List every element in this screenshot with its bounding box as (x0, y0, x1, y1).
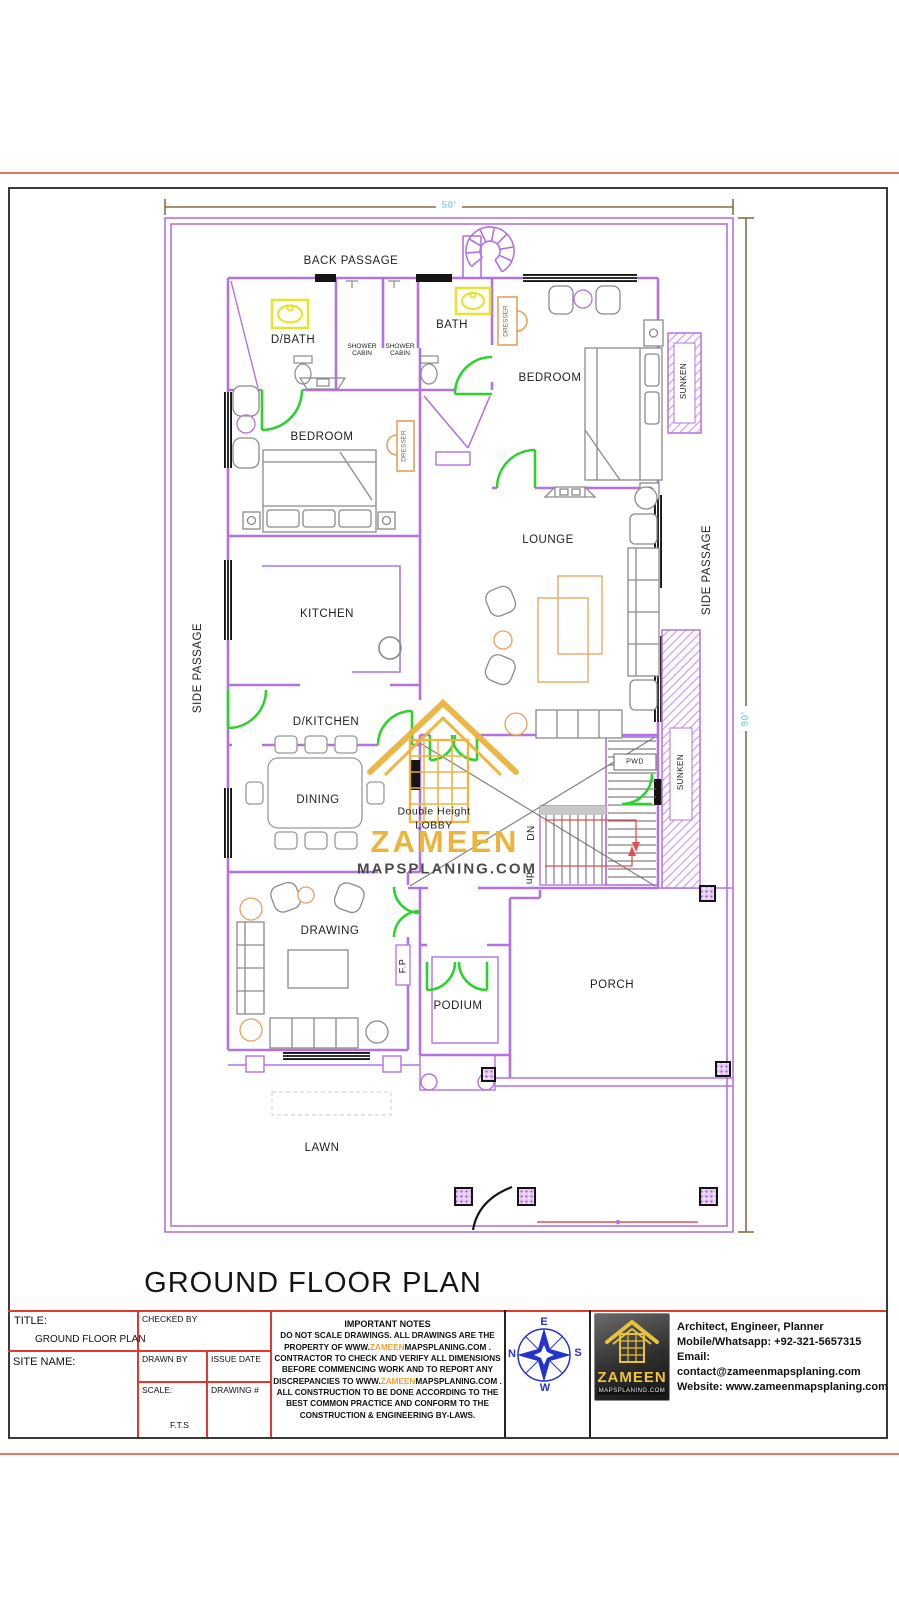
titleblock-divider (8, 1350, 272, 1352)
notes-line: DISCREPANCIES TO WWW.ZAMEENMAPSPLANING.C… (272, 1376, 503, 1387)
room-label-lawn: LAWN (305, 1142, 340, 1154)
notes-line: CONSTRUCTION & ENGINEERING BY-LAWS. (272, 1410, 503, 1421)
pillars (455, 886, 730, 1205)
logo-house-icon (602, 1317, 662, 1363)
compass-south: S (574, 1347, 581, 1359)
drawing-room-furniture (237, 880, 410, 1048)
company-logo: ZAMEEN MAPSPLANING.COM (594, 1313, 670, 1401)
compass-north: N (508, 1348, 516, 1360)
room-label-shower-cabin-2: SHOWERCABIN (385, 344, 414, 358)
compass-west: W (540, 1382, 550, 1394)
contact-info: Architect, Engineer, Planner Mobile/What… (677, 1320, 889, 1395)
contact-line: Architect, Engineer, Planner (677, 1320, 889, 1335)
room-label-drawing: DRAWING (301, 925, 360, 937)
dining-furniture (246, 736, 384, 849)
contact-line: Email: contact@zameenmapsplaning.com (677, 1350, 889, 1380)
room-label-pwd: PWD (626, 758, 644, 765)
site-name-label: SITE NAME: (13, 1356, 75, 1368)
room-label-d-kitchen: D/KITCHEN (293, 716, 359, 728)
label-fireplace: F.P (398, 959, 407, 974)
compass-icon (506, 1312, 588, 1434)
label-side-passage-right: SIDE PASSAGE (701, 525, 713, 615)
compass-east: E (540, 1316, 547, 1328)
drawn-by-label: DRAWN BY (142, 1354, 188, 1364)
width-dimension-label: 50' (438, 201, 459, 212)
notes-line: DO NOT SCALE DRAWINGS. ALL DRAWINGS ARE … (272, 1330, 503, 1341)
contact-line: Website: www.zameenmapsplaning.com (677, 1380, 889, 1395)
drawing-number-label: DRAWING # (211, 1385, 259, 1395)
room-label-lobby-line1: Double Height (397, 806, 470, 817)
sheet-title: GROUND FLOOR PLAN (144, 1268, 482, 1298)
notes-line: ALL CONSTRUCTION TO BE DONE ACCORDING TO… (272, 1387, 503, 1398)
notes-line: BEFORE COMMENCING WORK AND TO REPORT ANY (272, 1364, 503, 1375)
titleblock-divider (137, 1310, 139, 1437)
notes-title: IMPORTANT NOTES (272, 1318, 503, 1330)
label-dresser-right: DRESSER (504, 305, 511, 336)
notes-line: CONTRACTOR TO CHECK AND VERIFY ALL DIMEN… (272, 1353, 503, 1364)
room-label-bedroom-left: BEDROOM (291, 431, 354, 443)
titleblock-divider (589, 1310, 591, 1437)
room-label-dining: DINING (296, 794, 339, 806)
titleblock-divider (206, 1350, 208, 1437)
room-label-bedroom-right: BEDROOM (519, 372, 582, 384)
title-label: TITLE: (14, 1315, 47, 1327)
watermark-house-icon (370, 703, 516, 822)
scale-label: SCALE: (142, 1385, 172, 1395)
bedroom-right-furniture (549, 286, 663, 499)
label-dresser-left: DRESSER (402, 430, 409, 461)
logo-domain-text: MAPSPLANING.COM (598, 1387, 666, 1395)
spiral-stair-icon (463, 227, 514, 278)
room-label-back-passage: BACK PASSAGE (304, 255, 399, 267)
room-label-d-bath: D/BATH (271, 334, 315, 346)
contact-line: Mobile/Whatsapp: +92-321-5657315 (677, 1335, 889, 1350)
room-label-lounge: LOUNGE (522, 534, 574, 546)
title-value: GROUND FLOOR PLAN (35, 1334, 146, 1345)
issue-date-label: ISSUE DATE (211, 1354, 261, 1364)
terrace-dashed-outline (272, 1092, 391, 1115)
logo-brand-text: ZAMEEN (595, 1369, 669, 1386)
height-dimension-label: 90' (741, 708, 752, 729)
checked-by-label: CHECKED BY (142, 1314, 197, 1324)
watermark-brand-text: ZAMEEN (371, 824, 520, 860)
room-label-shower-cabin-1: SHOWERCABIN (347, 344, 376, 358)
watermark-domain-text: MAPSPLANING.COM (357, 861, 537, 878)
room-label-podium: PODIUM (434, 1000, 483, 1012)
room-label-kitchen: KITCHEN (300, 608, 354, 620)
drawing-sheet-page: 50' 90' BACK PASSAGE D/BATH SHOWERCABIN … (0, 0, 899, 1600)
label-sunken-top: SUNKEN (680, 363, 688, 399)
titleblock-top-border (8, 1310, 886, 1312)
sunken-areas (662, 333, 701, 888)
lounge-furniture (483, 487, 659, 738)
titleblock-divider (137, 1381, 272, 1383)
notes-line: PROPERTY OF WWW.ZAMEENMAPSPLANING.COM . (272, 1342, 503, 1353)
scale-value: F.T.S (170, 1420, 189, 1430)
bedroom-left-furniture (233, 386, 395, 532)
notes-line: BEST COMMON PRACTICE AND CONFORM TO THE (272, 1398, 503, 1409)
room-label-bath: BATH (436, 319, 468, 331)
important-notes: IMPORTANT NOTES DO NOT SCALE DRAWINGS. A… (272, 1318, 503, 1421)
room-label-porch: PORCH (590, 979, 634, 991)
label-sunken-bottom: SUNKEN (677, 754, 685, 790)
label-side-passage-left: SIDE PASSAGE (192, 623, 204, 713)
gate (473, 1187, 698, 1230)
label-stair-dn: DN (527, 825, 538, 840)
